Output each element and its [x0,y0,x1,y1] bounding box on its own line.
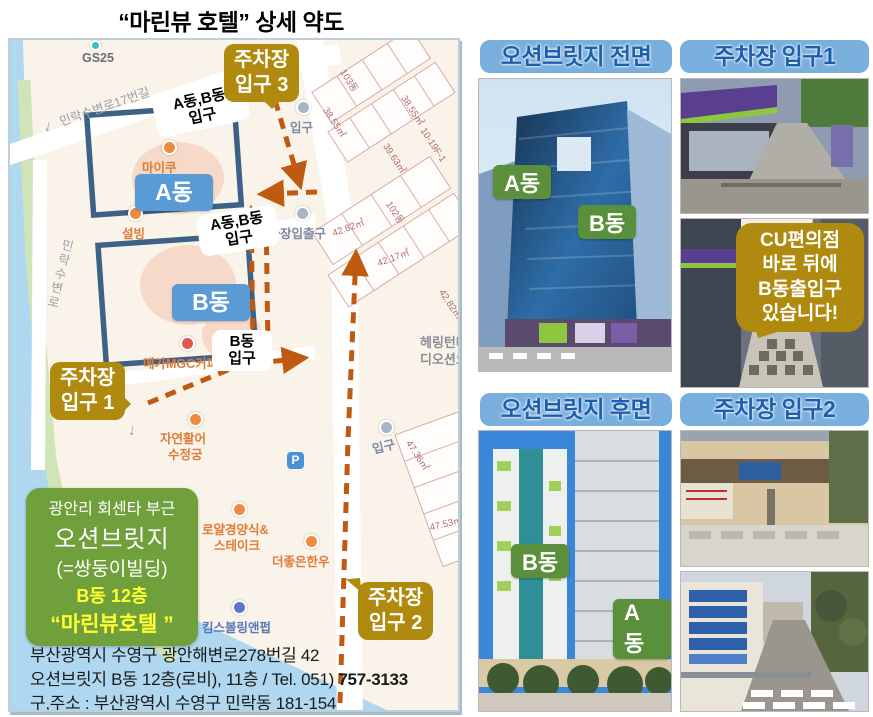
address-line-2: 오션브릿지 B동 12층(로비), 11층 / Tel. 051) 757-31… [30,665,408,690]
front-a-label: A동 [493,165,551,199]
poi-fish-restaurant-2: 수정궁 [168,444,203,463]
restaurant-icon [188,412,203,427]
flyer: “마린뷰 호텔” 상세 약도 [0,0,873,717]
panel-header-parking1: 주차장 입구1 [680,40,869,73]
photo-b-entrance-alley: CU편의점 바로 뒤에 B동출입구 있습니다! [680,218,869,388]
poi-sulbing: 설빙 [122,223,145,242]
restaurant-icon [162,140,177,155]
phone-number: 757-3133 [338,670,407,689]
parking1-photo-graphic [681,79,868,213]
rear-b-label: B동 [511,544,569,578]
gs25-icon [90,40,101,51]
parking2a-photo-graphic [681,431,868,566]
photo-ocean-bridge-rear: B동 A동 [478,430,672,712]
poi-hanwoo: 더좋은한우 [272,551,330,570]
building-b-pill: B동 [172,284,250,321]
parking-entrance-1-label: 주차장 입구 1 [50,362,125,420]
front-b-label: B동 [578,205,636,239]
rear-photo-graphic [479,431,671,711]
front-photo-graphic [479,79,671,371]
panel-header-parking2: 주차장 입구2 [680,393,869,426]
poi-royal-2: 스테이크 [214,535,260,554]
entrance-icon [295,206,310,221]
cu-direction-bubble: CU편의점 바로 뒤에 B동출입구 있습니다! [736,223,864,332]
label-pointer [262,99,282,119]
bowling-icon [232,600,247,615]
page-title: “마린뷰 호텔” 상세 약도 [0,3,462,37]
panel-header-front: 오션브릿지 전면 [480,40,672,73]
poi-entrance-top: 입구 [290,117,313,136]
cafe-icon [180,336,195,351]
panel-header-rear: 오션브릿지 후면 [480,393,672,426]
parking2b-photo-graphic [681,572,868,711]
parking-entrance-3-label: 주차장 입구 3 [224,44,299,102]
rear-a-label: A동 [613,599,671,659]
photo-ocean-bridge-front: A동 B동 [478,78,672,372]
poi-mega-coffee: 메가MGC커피 [143,353,218,372]
hotel-info-box: 광안리 회센타 부근 오션브릿지 (=쌍둥이빌딩) B동 12층 “마린뷰호텔 … [26,488,198,646]
road-waterfront [38,160,40,470]
building-a-pill: A동 [135,174,213,211]
parking-entrance-2-label: 주차장 입구 2 [358,582,433,640]
poi-herrington-2: 디오션오피 [420,349,460,368]
address-line-3: 구,주소 : 부산광역시 수영구 민락동 181-154 [30,689,336,712]
photo-parking1-street [680,78,869,214]
restaurant-icon [232,502,247,517]
restaurant-icon [304,534,319,549]
photo-parking2-driveway [680,571,869,712]
entrance-b: B동 입구 [212,330,272,371]
poi-gs25: GS25 [82,51,114,65]
address-line-1: 부산광역시 수영구 광안해변로278번길 42 [30,641,319,666]
label-pointer [121,394,141,414]
entrance-icon [296,100,311,115]
plot-cluster-bottom [395,409,460,566]
detail-map: 민락수변로17번길 민락수변로 ↓ ↓ GS25 마이쿠 설빙 메가MGC커피 … [8,38,460,712]
parking-p-icon: P [287,452,304,469]
photo-parking2-entrance [680,430,869,567]
poi-bowling: 킴스볼링앤펍 [202,617,271,636]
